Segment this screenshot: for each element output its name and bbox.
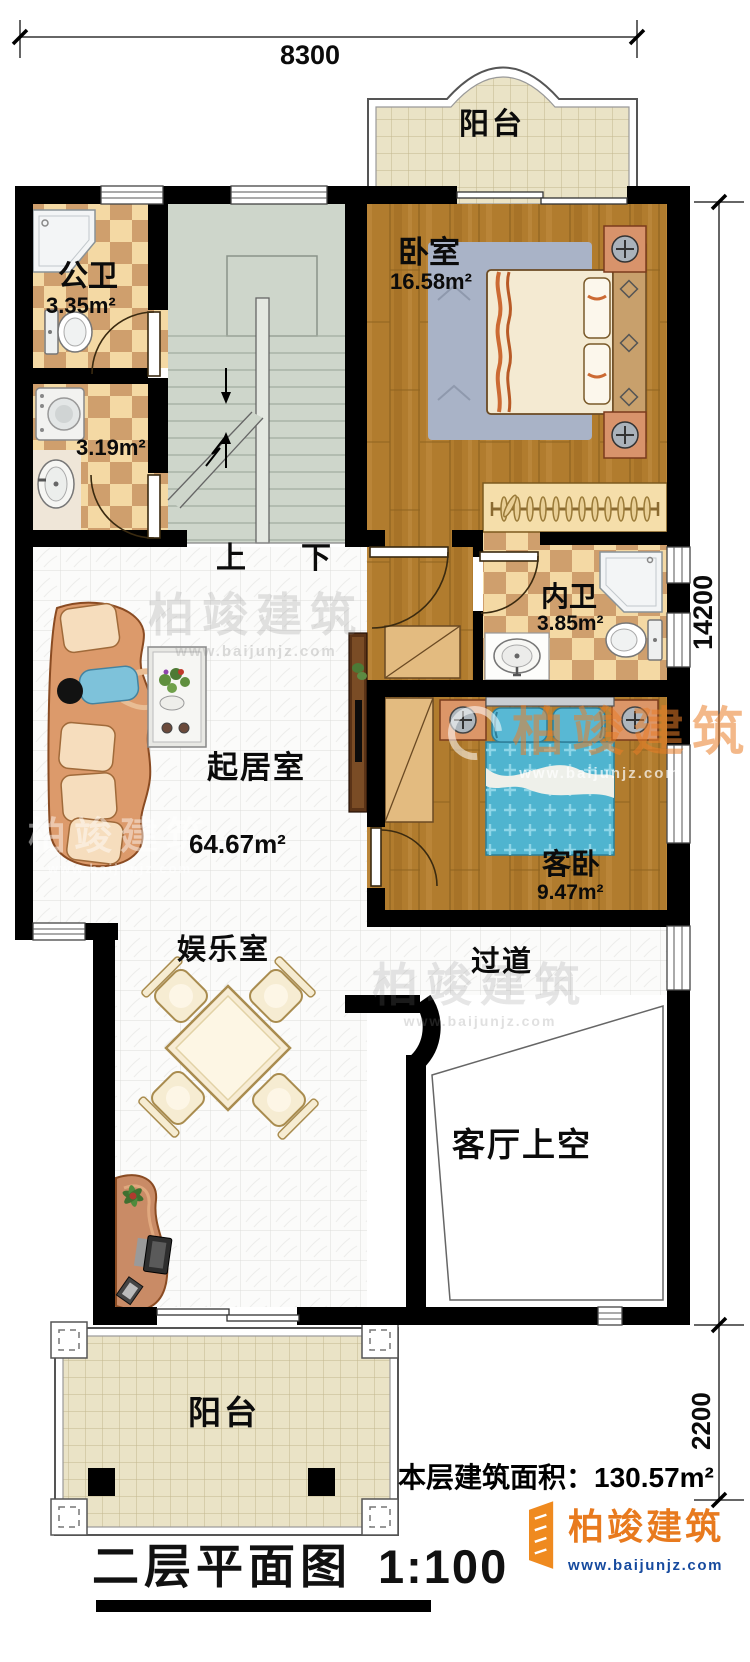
- title-underline: [96, 1600, 431, 1612]
- company-logo-icon: [500, 1497, 558, 1575]
- room-label-guest-bedroom: 客卧: [542, 851, 600, 880]
- room-label-balcony-top: 阳台: [459, 110, 525, 140]
- toilet-inner: [606, 620, 662, 660]
- room-label-living: 起居室: [207, 752, 306, 783]
- coffee-table: [148, 647, 206, 747]
- balcony-column: [308, 1468, 335, 1496]
- plan-title: 二层平面图1:100: [92, 1528, 508, 1597]
- sink-inner: [485, 633, 549, 680]
- dimension-right-balcony: 2200: [688, 1392, 714, 1450]
- washing-machine: [36, 388, 84, 440]
- room-label-balcony-bottom: 阳台: [188, 1396, 260, 1429]
- wardrobe-hangers: [483, 483, 667, 532]
- sink-laundry: [38, 460, 74, 508]
- room-label-public-bath: 公卫: [58, 262, 118, 292]
- floor-area-value: 130.57m²: [594, 1462, 714, 1493]
- balcony-column: [88, 1468, 115, 1496]
- company-logo: 柏竣建筑 www.baijunjz.com: [500, 1497, 724, 1575]
- room-label-entertainment: 娱乐室: [177, 936, 270, 965]
- room-area-bedroom: 16.58m²: [390, 271, 472, 293]
- floor-area-label: 本层建筑面积：: [398, 1462, 594, 1493]
- room-label-hallway: 过道: [471, 948, 533, 977]
- room-area-guest-bedroom: 9.47m²: [537, 882, 604, 903]
- floor-plan-drawing: [0, 0, 750, 1662]
- stair-label-up: 上: [216, 544, 246, 574]
- plan-title-text: 二层平面图: [92, 1540, 352, 1593]
- room-area-laundry: 3.19m²: [76, 437, 146, 459]
- room-area-inner-bath: 3.85m²: [537, 613, 604, 634]
- stair-label-down: 下: [301, 544, 331, 574]
- floor-plan-page: 柏竣建筑 www.baijunjz.com 柏竣建筑 www.baijunjz.…: [0, 0, 750, 1662]
- balcony-bottom-floor: [63, 1336, 390, 1527]
- room-area-living: 64.67m²: [189, 831, 286, 857]
- plan-scale-text: 1:100: [378, 1540, 508, 1593]
- room-label-inner-bath: 内卫: [541, 583, 597, 611]
- room-label-void: 客厅上空: [452, 1128, 592, 1161]
- dimension-top: 8300: [270, 42, 350, 69]
- floor-area-text: 本层建筑面积：130.57m²: [398, 1456, 714, 1496]
- room-label-bedroom: 卧室: [398, 237, 460, 268]
- tv-cabinet: [349, 633, 367, 812]
- company-url: www.baijunjz.com: [568, 1557, 724, 1574]
- company-name: 柏竣建筑: [568, 1498, 724, 1550]
- dimension-right-main: 14200: [690, 575, 717, 650]
- room-area-public-bath: 3.35m²: [46, 295, 116, 317]
